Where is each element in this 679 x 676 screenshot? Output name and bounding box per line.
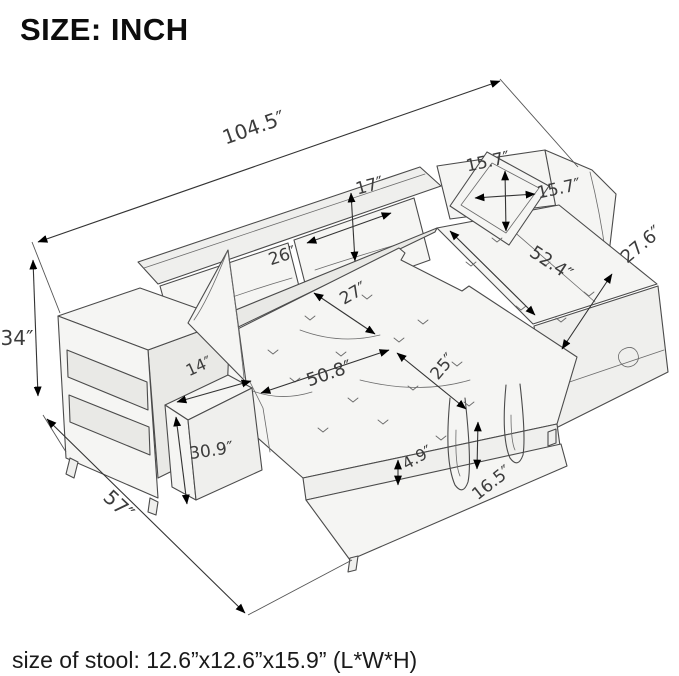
sofa-leg — [66, 458, 78, 478]
page-title: SIZE: INCH — [20, 12, 189, 47]
dim-label-overall-depth: 57″ — [99, 485, 139, 525]
dim-label-overall-height: 34″ — [1, 326, 34, 350]
dim-overall-height: 34″ — [1, 260, 38, 396]
extension-line — [32, 242, 60, 313]
sofa-leg — [348, 556, 358, 572]
dim-label-overall-width: 104.5″ — [219, 105, 288, 149]
sofa-leg — [548, 429, 556, 446]
extension-line — [248, 560, 352, 615]
dim-label-chaise-width: 27.6″ — [617, 222, 667, 268]
stool-size-caption: size of stool: 12.6”x12.6”x15.9” (L*W*H) — [12, 647, 417, 673]
sofa-sketch — [58, 150, 668, 572]
sofa-leg — [148, 498, 158, 515]
sofa-dimension-diagram-page: 104.5″ 34″ 57″ 17″ 26″ 15.7″ 15.7″ 52.4 — [0, 0, 679, 676]
sofa-dimension-diagram: 104.5″ 34″ 57″ 17″ 26″ 15.7″ 15.7″ 52.4 — [0, 0, 679, 676]
